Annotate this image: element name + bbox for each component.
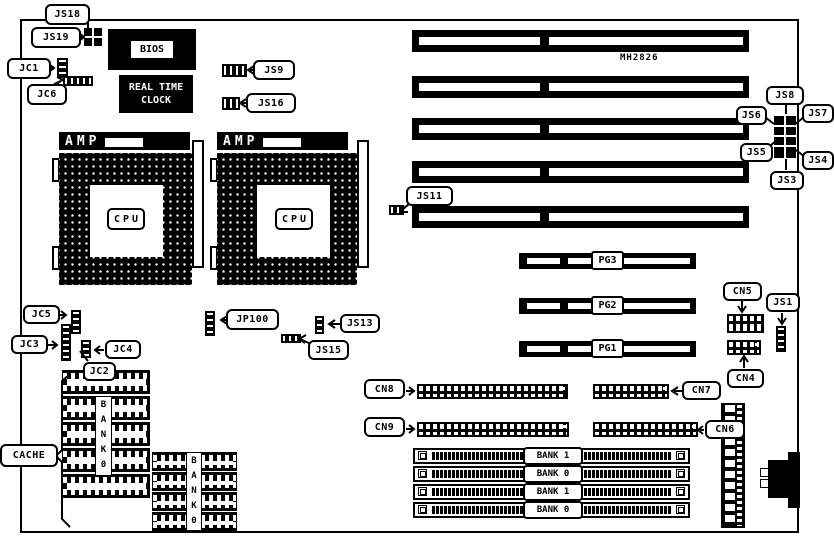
din-connector-pin <box>760 479 769 488</box>
jumper-jc4 <box>81 340 91 358</box>
simm-bank-label: BANK 0 <box>523 501 583 519</box>
label-js18: JS18 <box>45 4 90 25</box>
label-js8: JS8 <box>766 86 804 105</box>
isa-slot-5 <box>412 206 749 228</box>
label-js7: JS7 <box>802 104 834 123</box>
simm-latch <box>418 505 427 514</box>
isa-slot-4 <box>412 161 749 183</box>
jumper-jc6 <box>63 76 93 86</box>
jumper-jc5 <box>71 310 81 334</box>
connector-cn7 <box>593 384 669 399</box>
motherboard-diagram: BIOS REAL TIME CLOCK AMP CPU AMP CPU MH2… <box>0 0 834 540</box>
pci-slot-pg1-label: PG1 <box>591 339 624 358</box>
label-jc6: JC6 <box>27 84 67 105</box>
label-jc2: JC2 <box>83 362 116 381</box>
jumper-js11 <box>389 205 404 215</box>
amp-label-2: AMP <box>223 134 258 149</box>
simm-bank-label: BANK 0 <box>523 465 583 483</box>
jumper-jp100 <box>205 311 215 336</box>
connector-cn6 <box>593 422 698 437</box>
simm-bank-label: BANK 1 <box>523 447 583 465</box>
cache-bank0-label-right: BANK0 <box>186 452 202 531</box>
label-cn8: CN8 <box>364 379 405 399</box>
cache-bank0-label-left: BANK0 <box>95 396 112 476</box>
din-connector-body <box>768 460 800 498</box>
pci-slot-pg3: PG3 <box>519 253 696 269</box>
jumper-jc3 <box>61 324 71 361</box>
label-cn7: CN7 <box>682 381 721 400</box>
label-cache: CACHE <box>0 444 58 467</box>
simm-latch <box>676 451 685 460</box>
label-js13: JS13 <box>340 314 380 333</box>
label-jc4: JC4 <box>105 340 141 359</box>
label-js9: JS9 <box>253 60 295 80</box>
label-js6: JS6 <box>736 106 767 125</box>
rtc-label: REAL TIME CLOCK <box>119 81 193 107</box>
jumper-js9 <box>222 64 247 77</box>
label-jc1: JC1 <box>7 58 51 79</box>
cpu-2-label: CPU <box>275 208 313 230</box>
pci-slot-pg2-label: PG2 <box>591 296 624 315</box>
jumper-js15 <box>281 334 301 343</box>
simm-slot-2: BANK 0 <box>413 466 690 482</box>
din-connector-step-top <box>788 452 800 462</box>
isa-slot-2 <box>412 76 749 98</box>
jumper-jc1 <box>57 58 68 78</box>
amp-label-1: AMP <box>65 134 100 149</box>
cpu-socket-2-lever <box>357 140 369 268</box>
bios-label: BIOS <box>131 41 173 58</box>
label-js19: JS19 <box>31 27 81 48</box>
label-js1: JS1 <box>766 293 800 312</box>
label-js11: JS11 <box>406 186 453 206</box>
label-jc5: JC5 <box>23 305 60 324</box>
simm-latch <box>418 451 427 460</box>
isa-slot-3 <box>412 118 749 140</box>
cpu-socket-1-lever-slot <box>105 138 143 147</box>
connector-cn9 <box>417 422 569 437</box>
label-cn5: CN5 <box>723 282 762 301</box>
label-js15: JS15 <box>308 340 349 360</box>
label-js4: JS4 <box>802 151 834 170</box>
label-js3: JS3 <box>770 171 804 190</box>
din-connector-step-bottom <box>788 496 800 508</box>
pci-slot-pg1: PG1 <box>519 341 696 357</box>
label-cn9: CN9 <box>364 417 405 437</box>
jumper-js18-js19-block <box>84 28 102 46</box>
din-connector-pin <box>760 468 769 477</box>
simm-latch <box>418 469 427 478</box>
cpu-socket-1-lever <box>192 140 204 268</box>
connector-cn8 <box>417 384 568 399</box>
simm-latch <box>418 487 427 496</box>
connector-cn5 <box>727 314 764 333</box>
label-jc3: JC3 <box>11 335 48 354</box>
label-cn4: CN4 <box>727 369 764 388</box>
cpu-1-label: CPU <box>107 208 145 230</box>
simm-latch <box>676 505 685 514</box>
pci-slot-pg2: PG2 <box>519 298 696 314</box>
cache-chip <box>62 474 150 498</box>
label-js5: JS5 <box>740 143 773 162</box>
label-js16: JS16 <box>246 93 296 113</box>
connector-cn4 <box>727 340 761 355</box>
cpu-socket-2-lever-slot <box>263 138 301 147</box>
simm-slot-3: BANK 1 <box>413 484 690 500</box>
simm-bank-label: BANK 1 <box>523 483 583 501</box>
jumper-js16 <box>222 97 240 110</box>
board-model-text: MH2826 <box>620 53 659 63</box>
pci-slot-pg3-label: PG3 <box>591 251 624 270</box>
label-jp100: JP100 <box>226 309 279 330</box>
label-cn6: CN6 <box>705 420 745 439</box>
jumper-js3-js8-block <box>774 116 796 158</box>
simm-slot-1: BANK 1 <box>413 448 690 464</box>
simm-slot-4: BANK 0 <box>413 502 690 518</box>
jumper-js13 <box>315 316 324 334</box>
simm-latch <box>676 469 685 478</box>
jumper-js1 <box>776 326 786 352</box>
simm-latch <box>676 487 685 496</box>
isa-slot-1 <box>412 30 749 52</box>
rtc-chip: REAL TIME CLOCK <box>119 75 193 113</box>
